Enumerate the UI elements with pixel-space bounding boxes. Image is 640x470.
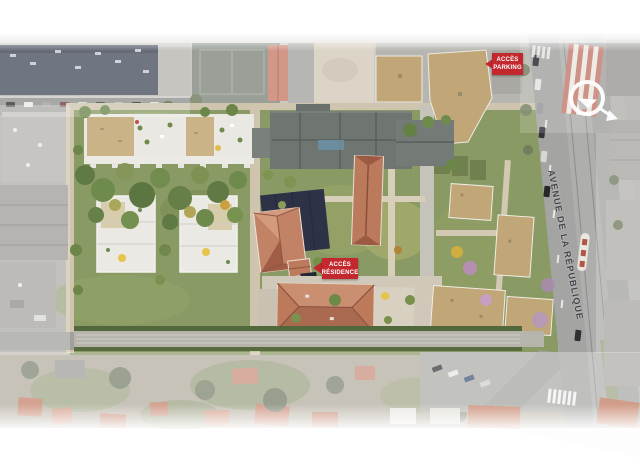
acces-parking-line1: ACCÈS (496, 56, 518, 64)
residence-building-lower (258, 283, 415, 333)
acces-residence-line1: ACCÈS (329, 261, 351, 269)
aerial-site-plan: AVENUE DE LA RÉPUBLIQUE ACCÈS PARKING AC… (0, 0, 640, 470)
map-canvas (0, 0, 640, 470)
white-terraced-buildings (84, 114, 254, 168)
acces-residence-label: ACCÈS RÉSIDENCE (322, 258, 358, 279)
acces-residence-line2: RÉSIDENCE (322, 269, 359, 277)
walkway-mall (0, 326, 544, 351)
aerial-photo (0, 33, 640, 458)
acces-parking-label: ACCÈS PARKING (492, 53, 523, 75)
white-building-a (97, 196, 155, 272)
acces-parking-line2: PARKING (493, 64, 522, 72)
terracotta-wing (351, 156, 383, 246)
